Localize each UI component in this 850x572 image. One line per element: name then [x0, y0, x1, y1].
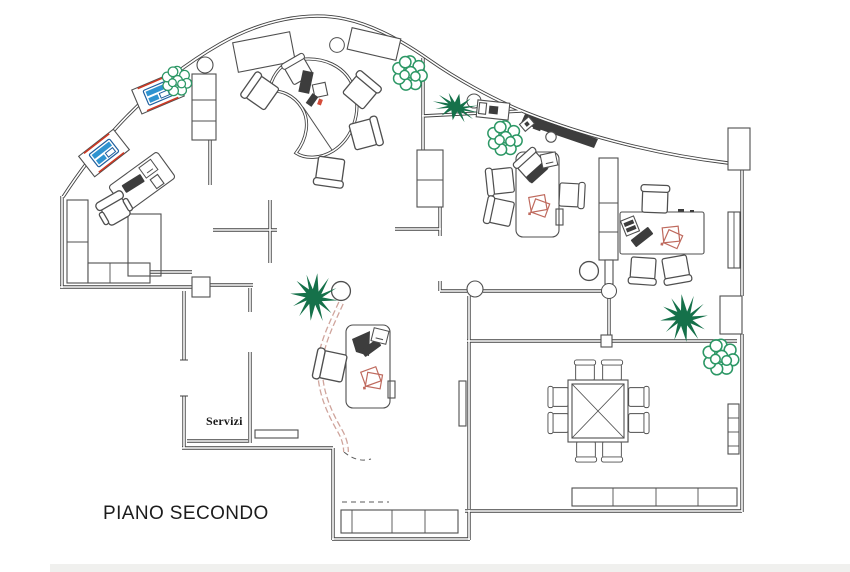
visitor-chair [312, 347, 348, 384]
entry-bench [341, 510, 458, 533]
column [467, 281, 483, 297]
copier [476, 100, 510, 120]
office-middle [483, 146, 585, 237]
meeting-bench [572, 488, 737, 506]
monitor [371, 328, 389, 345]
conference-chair [574, 360, 595, 380]
rosette-plant [488, 121, 522, 155]
base-cabinets-left [88, 263, 150, 283]
cabinet-partition-right [599, 158, 618, 284]
workstation-left [93, 151, 175, 276]
column [580, 262, 599, 281]
room-label-servizi: Servizi [206, 414, 243, 428]
task-chair [640, 185, 670, 214]
floor-plan-page: Servizi PIANO SECONDO [0, 0, 850, 572]
office-bottom [312, 303, 395, 452]
conference-chair [601, 360, 622, 380]
radiator [728, 404, 739, 454]
office-right [620, 185, 704, 286]
conference-chair [575, 442, 596, 462]
visitor-chair [313, 156, 347, 189]
visitor-chair [660, 254, 692, 285]
cabinet-middle [417, 150, 443, 207]
visitor-chair [628, 257, 658, 286]
desk-tick [678, 209, 684, 212]
column [332, 282, 351, 301]
reception-area [79, 28, 401, 276]
door-swing-dash [344, 452, 371, 460]
floor-plan-drawing: Servizi PIANO SECONDO [0, 0, 850, 572]
rosette-plant [703, 339, 739, 375]
pilaster [459, 381, 466, 426]
wall-pier [192, 277, 210, 297]
meeting-room [548, 360, 649, 462]
column [197, 57, 213, 73]
conference-table [568, 380, 628, 442]
conference-chair [601, 442, 622, 462]
visitor-chair [483, 195, 515, 228]
wall-pier [720, 296, 742, 334]
round-item [546, 132, 556, 142]
column [601, 283, 616, 298]
reception-desk [240, 52, 384, 188]
column [330, 38, 345, 53]
wardrobe-left [67, 200, 88, 283]
conference-chair [548, 386, 568, 407]
conference-chair [629, 386, 649, 407]
conference-chair [548, 412, 568, 433]
radiator-servizi [255, 430, 298, 438]
wall-pier [728, 128, 750, 170]
sideboard [347, 28, 401, 61]
visitor-chair [559, 181, 586, 209]
conference-chair [629, 412, 649, 433]
cabinet-column-top [192, 74, 216, 140]
curved-wall-counter [521, 114, 598, 148]
desk-tick [690, 210, 694, 213]
palm-plant [658, 292, 711, 345]
monitor [540, 152, 558, 168]
door-opening [179, 360, 189, 396]
scan-artifact-band [50, 564, 850, 572]
floor-title: PIANO SECONDO [103, 503, 269, 524]
printer-station [79, 129, 130, 177]
visitor-chair [485, 166, 515, 197]
door-marker [601, 335, 612, 347]
